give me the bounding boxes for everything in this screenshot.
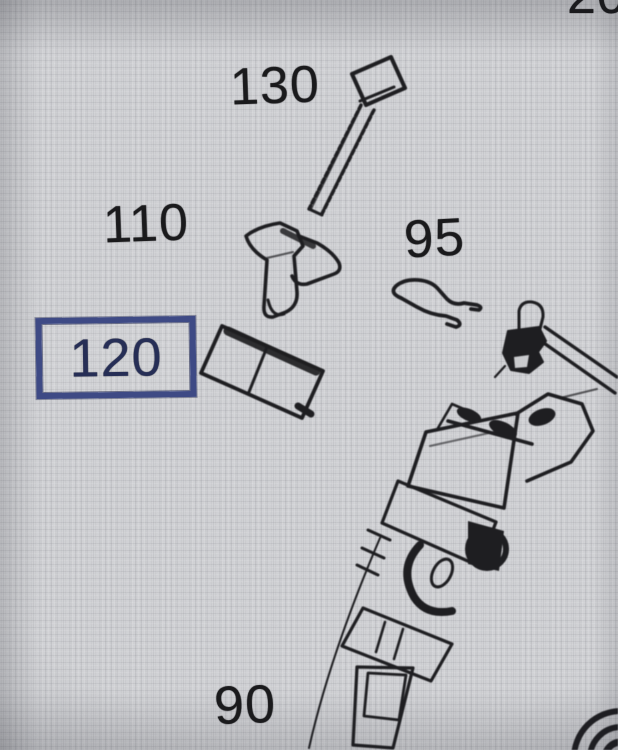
callout-110[interactable]: 110 (102, 197, 190, 252)
connector-120-icon (201, 326, 323, 418)
callout-90[interactable]: 90 (213, 677, 277, 733)
parts-diagram-page: 130 110 95 90 20 120 (0, 0, 618, 750)
callout-20-clipped[interactable]: 20 (567, 0, 618, 22)
callout-95[interactable]: 95 (403, 210, 467, 266)
bolt-130-icon (309, 57, 405, 215)
retaining-clip-110-icon (246, 223, 340, 317)
fuel-line-icon (495, 302, 617, 393)
injector-90-icon (309, 389, 597, 748)
seal-clip-95-icon (393, 280, 480, 327)
selected-callout-box[interactable]: 120 (35, 316, 196, 399)
callout-130[interactable]: 130 (229, 58, 321, 113)
oring-rings-icon (574, 711, 618, 750)
callout-120[interactable]: 120 (69, 330, 163, 385)
